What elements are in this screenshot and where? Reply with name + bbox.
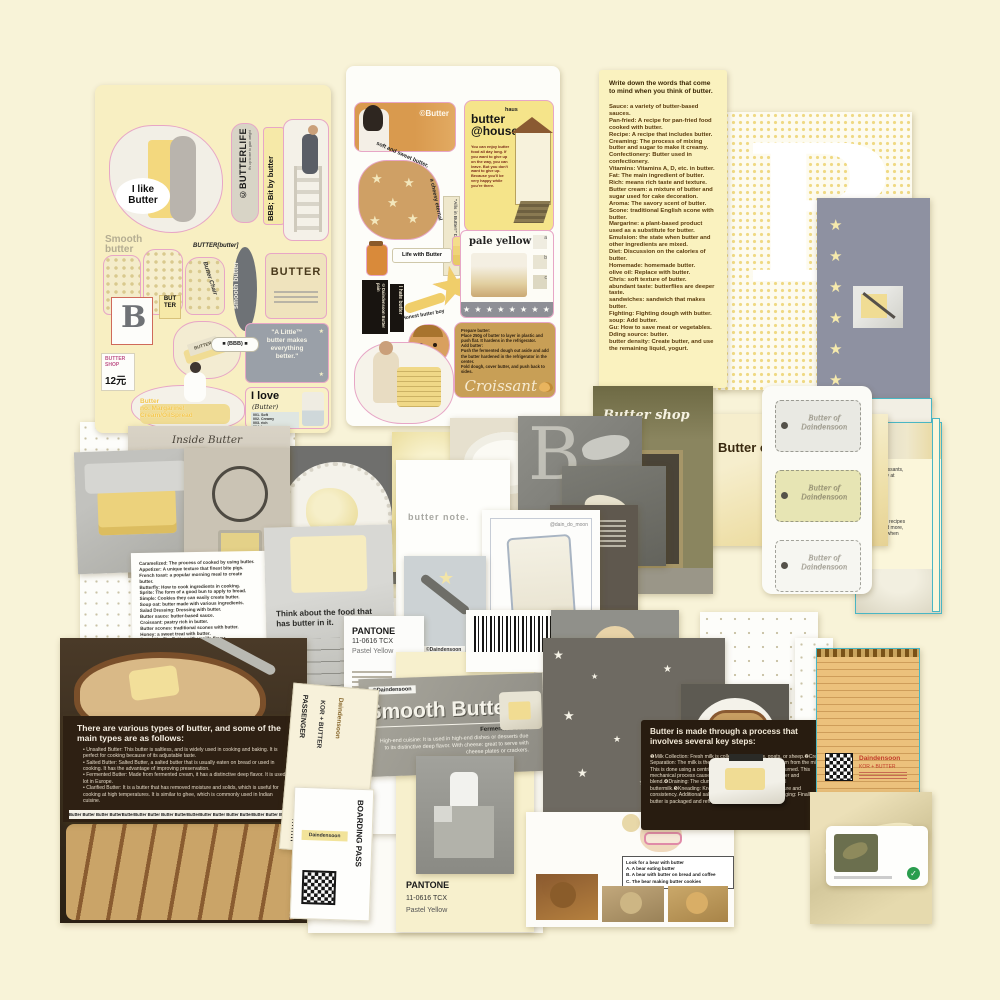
butter-shop-price-sticker: BUTTER SHOP 12元: [101, 353, 135, 391]
tag-hole-icon: [781, 562, 788, 569]
foil-butter-block: [97, 489, 176, 536]
bear-photo-2: [602, 886, 664, 922]
pantone-swatch-brand: PANTONE: [406, 880, 449, 890]
figure-silhouette: [170, 136, 196, 222]
butter-types-title: There are various types of butter, and s…: [77, 723, 293, 744]
croissant-card: Prepare butter: Place 250g of butter to …: [454, 322, 556, 398]
swatch-a: a: [533, 235, 547, 249]
star-icon: ★: [563, 708, 575, 724]
boarding-pass-label: BOARDING PASS: [354, 800, 365, 867]
bbb-vertical-sticker: BBB; Bit by butter: [263, 127, 285, 225]
girl-figure-kneeling: [373, 351, 399, 403]
man-head: [308, 125, 318, 135]
butter-types-footer: Butter Butter Butter ButterButterButter …: [69, 810, 299, 819]
pantone-swatch-name: Pastel Yellow: [406, 907, 447, 914]
send-check-icon: ✓: [907, 867, 920, 880]
toast-star-icon: ★: [387, 195, 399, 211]
sliced-loaf-shape: [66, 824, 298, 920]
butter-note-label: butter note.: [408, 512, 470, 522]
i-love-title: I love: [251, 390, 279, 402]
daindensoon-black-tag: ©Daindensoon Butter pain: [362, 280, 388, 334]
quote-text: "A Little™ butter makes everything bette…: [252, 329, 322, 362]
butter-butter-text: BUTTER[butter]: [193, 243, 238, 249]
bbb-pill-sticker: ■ (BBB) ■: [211, 337, 259, 352]
ladder-shape: [294, 166, 322, 232]
pantone-swatch-code: 11-0616 TCX: [406, 895, 447, 902]
ring-shape: [212, 466, 268, 522]
i-like-butter-sticker: I like Butter: [109, 125, 223, 233]
smooth-card-title: Smooth Butter: [367, 696, 514, 728]
jam-jar-sticker: [366, 244, 388, 276]
notepad-qr-code: [825, 753, 853, 781]
butter-pack-lines: [274, 288, 318, 306]
bird-shape: [840, 840, 869, 862]
croissant-title: Croissant: [464, 377, 537, 395]
dish-label-strip: [729, 754, 763, 761]
notepad-brand: Daindensoon: [859, 755, 900, 762]
butter-words-body: Sauce: a variety of butter-based sauces.…: [609, 104, 717, 380]
butter-house-body: You can enjoy butter food all day long. …: [471, 145, 511, 189]
butterlife-subtext: It's up to me to gain weight: [248, 130, 252, 170]
ticket-brand-label: Daindensoon: [334, 697, 345, 739]
butterlife-label: ©BUTTERLIFE: [238, 128, 248, 200]
butter-process-box: Butter is made through a process that in…: [641, 720, 833, 830]
gift-tag-1: Butter of Daindensoon: [775, 400, 861, 452]
butter-block-on-dish: [725, 768, 765, 790]
butterlife-pill-sticker: ©BUTTERLIFE It's up to me to gain weight: [231, 123, 259, 223]
boarding-ticket-2: BOARDING PASS Daindensoon: [290, 787, 375, 922]
girl-hair: [363, 105, 383, 131]
notepad-binding: [817, 649, 919, 657]
wrapped-butter-block: [290, 535, 367, 593]
i-love-butter-card: I love (Butter) 001. Soft 002. Creamy 00…: [245, 387, 329, 429]
sticker-sheet-butterhouse: ©Butter haus butter @house You can enjoy…: [346, 66, 560, 426]
bear-photo-1: [536, 874, 598, 920]
milk-jug-shape: [450, 772, 478, 808]
boy-hair: [413, 325, 443, 337]
bear-shape: [550, 882, 576, 908]
pantone-name: Pastel Yellow: [352, 648, 393, 655]
butter-photo-credit: ©Butter: [420, 109, 449, 118]
cyan-edge-strip: [932, 418, 940, 612]
butter-cube: [508, 701, 531, 720]
quote-card-sticker: "A Little™ butter makes everything bette…: [245, 323, 329, 383]
ladder-man-sticker: [283, 119, 329, 241]
butter-house-card: haus butter @house You can enjoy butter …: [464, 100, 554, 232]
clay-smear-shape: [580, 430, 632, 464]
croissant-body: Prepare butter: Place 250g of butter to …: [461, 328, 549, 374]
butter-photo-sticker: ©Butter: [354, 102, 456, 152]
ticket-route-label: KOR + BUTTER: [315, 700, 326, 749]
house-stairs: [513, 201, 550, 223]
butter-pack-label: BUTTER: [266, 266, 326, 278]
toast-star-icon: ★: [369, 213, 381, 229]
butter-types-body: • Unsalted Butter: This butter is saltle…: [83, 747, 291, 805]
b-letter-sticker: B: [111, 297, 153, 345]
woman-caption: Butter no. Margarine! Cream/OilSpread: [140, 398, 193, 419]
pantone-code: 11-0616 TCX: [352, 638, 393, 645]
foil-sheet-shape: [84, 460, 189, 494]
milk-crate-photo: [416, 756, 514, 874]
girl-head-kneeling: [379, 341, 393, 355]
man-figure: [302, 134, 318, 174]
croissant-icon: [539, 382, 553, 392]
ticket-passenger-label: PASSENGER: [298, 694, 309, 738]
bear-shape: [686, 892, 708, 914]
i-love-subtitle: (Butter): [252, 403, 278, 411]
pale-yellow-title: pale yellow: [469, 236, 531, 247]
jar-lid: [369, 241, 383, 246]
pantone-brand: PANTONE: [352, 626, 395, 636]
caption-bar: [834, 876, 892, 879]
butter-dish-overlay-photo: [709, 758, 785, 804]
stacking-girl-photo: [471, 253, 527, 297]
woman-head: [190, 362, 201, 373]
tag-hole-icon: [781, 492, 788, 499]
house-roof: [511, 117, 553, 133]
smooth-butter-oval-sticker: smooth butter: [233, 247, 257, 331]
notepad-fineprint: [859, 772, 907, 780]
smooth-butter-text: Smooth butter: [105, 235, 142, 255]
butter-process-title: Butter is made through a process that in…: [650, 727, 826, 747]
sitting-woman-sticker: Butter no. Margarine! Cream/OilSpread: [131, 385, 245, 431]
butter-knife-photo: [853, 286, 903, 328]
star-icon: ★: [613, 734, 621, 745]
star-icon: ★: [591, 672, 598, 681]
inside-butter-title: Inside Butter: [172, 434, 242, 446]
swatch-c: c: [533, 275, 547, 289]
gray-star-card: ★ ★ ★ ★ ★ ★: [817, 198, 930, 406]
butter-board-shape: [397, 367, 441, 407]
butter-stamp-sticker: BUT TER: [159, 295, 181, 319]
butter-dish-photo: [499, 691, 542, 730]
butter-words-intro: Write down the words that come to mind w…: [609, 80, 717, 96]
bird-photo: [834, 834, 878, 872]
gift-tag-label: Butter of Daindensoon: [792, 484, 856, 502]
butter-pack-sticker: BUTTER: [265, 253, 327, 319]
butter-types-box: There are various types of butter, and s…: [63, 716, 307, 822]
model-photo: [302, 392, 324, 426]
butter-shop-price: 12元: [105, 372, 126, 387]
bear-shape: [620, 892, 642, 914]
bear-photo-3: [668, 886, 728, 922]
star-icon: ★: [577, 766, 588, 780]
star-toast-sticker: ★ ★ ★ ★ ★: [358, 160, 440, 240]
star-icon: ★: [663, 664, 672, 675]
bear-quiz-prompt: Look for a bear with butter A. A bear ea…: [622, 856, 734, 889]
sticker-sheet-butterlife: I like Butter ©BUTTERLIFE It's up to me …: [95, 85, 331, 433]
quote-star-icon: ★: [319, 371, 324, 378]
star-icon: ★: [553, 648, 564, 662]
pale-yellow-star-row: ★ ★ ★ ★ ★ ★ ★ ★: [461, 302, 553, 317]
girl-pigtail: [622, 814, 640, 832]
glass-handle-text: @dain_do_moon: [550, 522, 588, 528]
house-illustration: [515, 131, 551, 205]
b-letter: B: [121, 300, 146, 335]
star-column: ★ ★ ★ ★ ★ ★: [829, 210, 842, 396]
toast-star-icon: ★: [371, 171, 383, 187]
gift-tag-label: Butter of Daindensoon: [792, 414, 856, 432]
butter-words-card: Write down the words that come to mind w…: [599, 70, 727, 388]
notepad-route: KOR + BUTTER: [859, 764, 896, 770]
qr-code: [301, 870, 336, 905]
crate-shape: [434, 806, 494, 858]
gift-tag-2: Butter of Daindensoon: [775, 470, 861, 522]
i-like-butter-bubble: I like Butter: [116, 178, 170, 214]
butter-star-on-knife: ★: [438, 568, 454, 589]
ruled-notepad: Daindensoon KOR + BUTTER: [816, 648, 920, 798]
toast-star-icon: ★: [407, 211, 419, 227]
swatch-b: b: [533, 255, 547, 269]
kneeling-girl-sticker: [354, 342, 454, 424]
tag-hole-icon: [781, 422, 788, 429]
toast-star-icon: ★: [403, 175, 415, 191]
quote-star-icon: ★: [319, 328, 324, 335]
gift-tag-label: Butter of Daindensoon: [792, 554, 856, 572]
bird-message-card: ✓: [826, 826, 928, 886]
ticket-brand-tag: Daindensoon: [301, 830, 347, 842]
butter-shop-tag: BUTTER SHOP: [105, 357, 125, 368]
pink-glasses-icon: [644, 832, 682, 845]
collage-canvas: B I like Butter ©BUTTERLIFE It's up to m…: [0, 0, 1000, 1000]
gift-tags-card: Butter of Daindensoon Butter of Daindens…: [762, 386, 872, 594]
pale-yellow-card: pale yellow a b c ★ ★ ★ ★ ★ ★ ★ ★: [460, 230, 554, 318]
gift-tag-3: Butter of Daindensoon: [775, 540, 861, 592]
